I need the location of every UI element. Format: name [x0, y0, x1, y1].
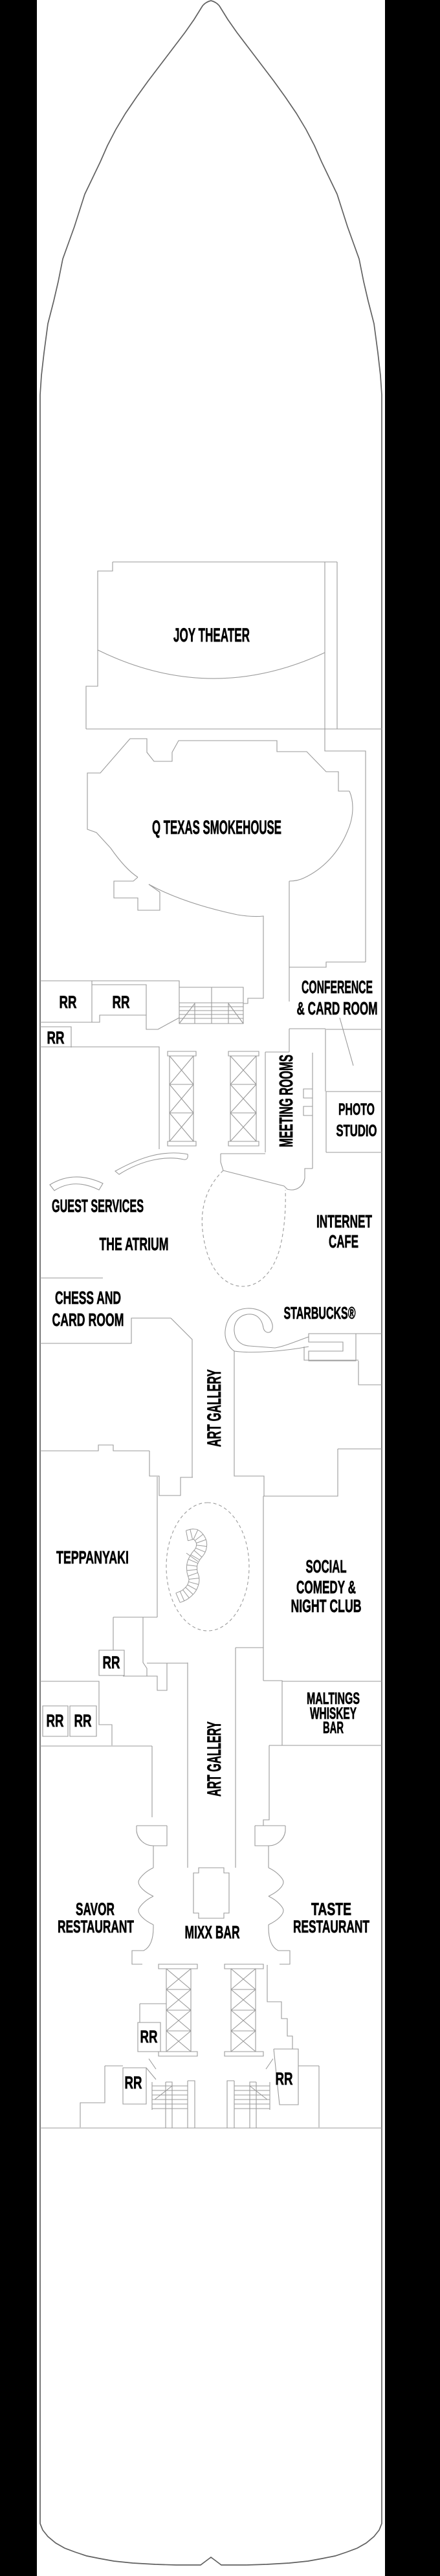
svg-text:JOY THEATER: JOY THEATER — [173, 625, 250, 646]
svg-text:ART GALLERY: ART GALLERY — [204, 1721, 225, 1797]
svg-text:STUDIO: STUDIO — [336, 1122, 377, 1140]
svg-text:SAVOR: SAVOR — [76, 1899, 115, 1919]
svg-text:RESTAURANT: RESTAURANT — [293, 1917, 369, 1936]
svg-text:STARBUCKS®: STARBUCKS® — [284, 1303, 356, 1323]
svg-text:INTERNET: INTERNET — [316, 1211, 372, 1231]
svg-text:RR: RR — [276, 2069, 293, 2089]
svg-text:COMEDY &: COMEDY & — [296, 1577, 356, 1597]
svg-text:CARD ROOM: CARD ROOM — [52, 1310, 124, 1330]
svg-text:THE ATRIUM: THE ATRIUM — [100, 1234, 169, 1254]
svg-text:TEPPANYAKI: TEPPANYAKI — [56, 1547, 129, 1567]
svg-text:CHESS AND: CHESS AND — [55, 1288, 121, 1308]
svg-text:CONFERENCE: CONFERENCE — [302, 977, 373, 997]
svg-text:& CARD ROOM: & CARD ROOM — [297, 998, 378, 1018]
svg-text:MEETING ROOMS: MEETING ROOMS — [276, 1055, 297, 1147]
svg-text:BAR: BAR — [323, 1719, 344, 1737]
svg-text:ART GALLERY: ART GALLERY — [204, 1369, 225, 1447]
svg-text:RR: RR — [47, 1711, 64, 1730]
svg-text:MIXX BAR: MIXX BAR — [185, 1922, 240, 1942]
svg-text:RR: RR — [140, 2027, 158, 2046]
svg-text:RR: RR — [113, 992, 130, 1012]
svg-text:GUEST SERVICES: GUEST SERVICES — [52, 1196, 144, 1216]
svg-text:RR: RR — [74, 1711, 92, 1730]
svg-text:RR: RR — [103, 1653, 120, 1672]
svg-text:Q TEXAS SMOKEHOUSE: Q TEXAS SMOKEHOUSE — [152, 817, 281, 838]
svg-text:RR: RR — [125, 2073, 142, 2092]
svg-text:RR: RR — [47, 1028, 65, 1047]
svg-text:NIGHT CLUB: NIGHT CLUB — [291, 1596, 362, 1616]
svg-text:RR: RR — [60, 992, 77, 1012]
svg-text:SOCIAL: SOCIAL — [306, 1556, 347, 1576]
svg-text:PHOTO: PHOTO — [338, 1101, 375, 1119]
svg-text:TASTE: TASTE — [311, 1899, 351, 1919]
svg-text:CAFE: CAFE — [329, 1231, 358, 1251]
svg-text:RESTAURANT: RESTAURANT — [58, 1917, 134, 1936]
